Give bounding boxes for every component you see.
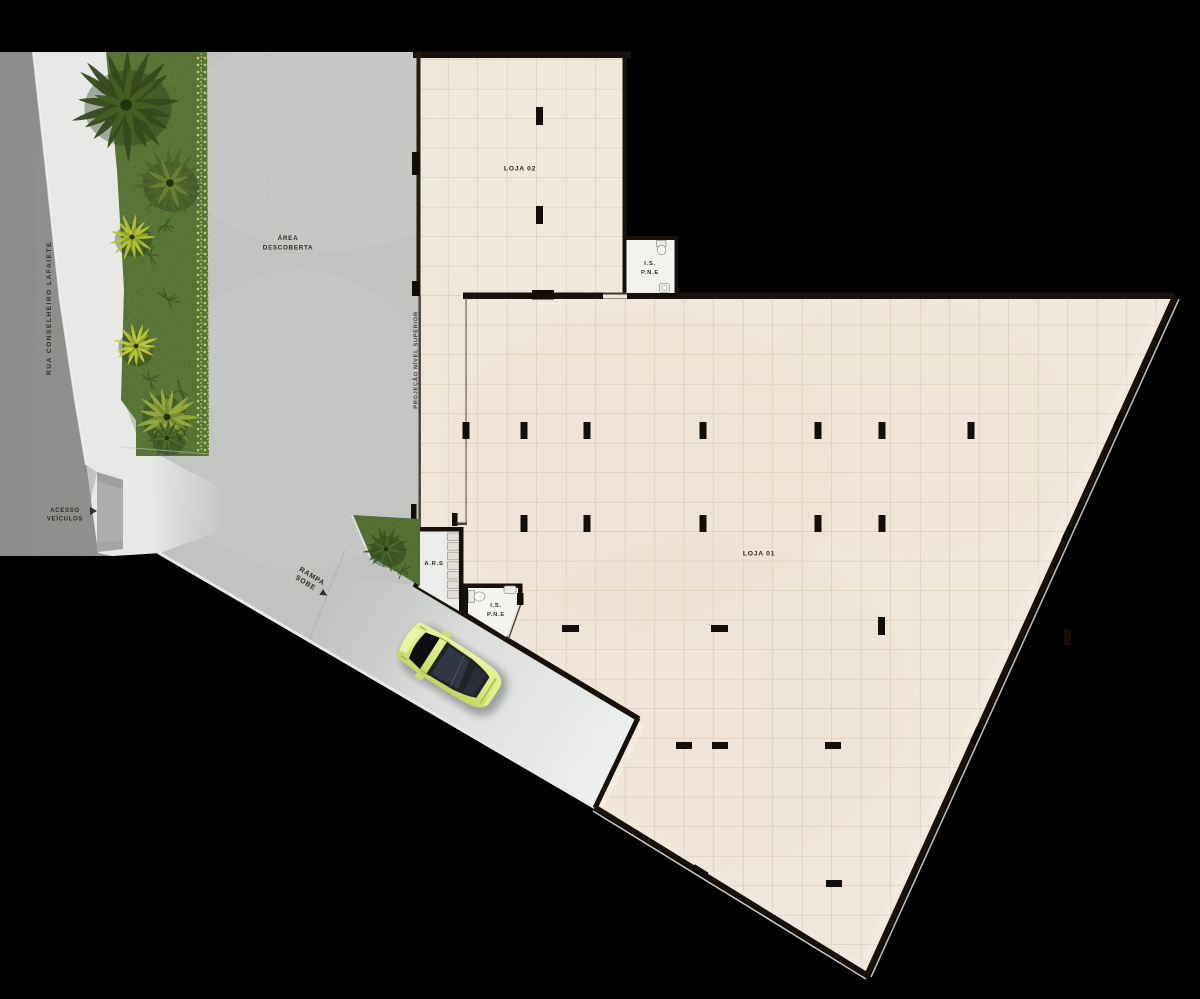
svg-text:RUA CONSELHEIRO LAFAIETE: RUA CONSELHEIRO LAFAIETE	[46, 241, 53, 375]
svg-text:LOJA 02: LOJA 02	[504, 166, 536, 173]
svg-text:A.R.S: A.R.S	[424, 561, 443, 567]
svg-text:LOJA 01: LOJA 01	[743, 551, 775, 558]
svg-text:DESCOBERTA: DESCOBERTA	[263, 245, 314, 252]
svg-text:PROJEÇÃO NÍVEL SUPERIOR: PROJEÇÃO NÍVEL SUPERIOR	[412, 311, 420, 409]
svg-text:ÁREA: ÁREA	[278, 233, 299, 242]
svg-text:VEÍCULOS: VEÍCULOS	[47, 515, 83, 523]
svg-text:I.S.: I.S.	[490, 603, 502, 609]
svg-text:ACESSO: ACESSO	[50, 508, 80, 514]
svg-text:I.S.: I.S.	[644, 261, 656, 267]
svg-text:P.N.E: P.N.E	[641, 270, 659, 276]
svg-text:P.N.E: P.N.E	[487, 612, 505, 618]
